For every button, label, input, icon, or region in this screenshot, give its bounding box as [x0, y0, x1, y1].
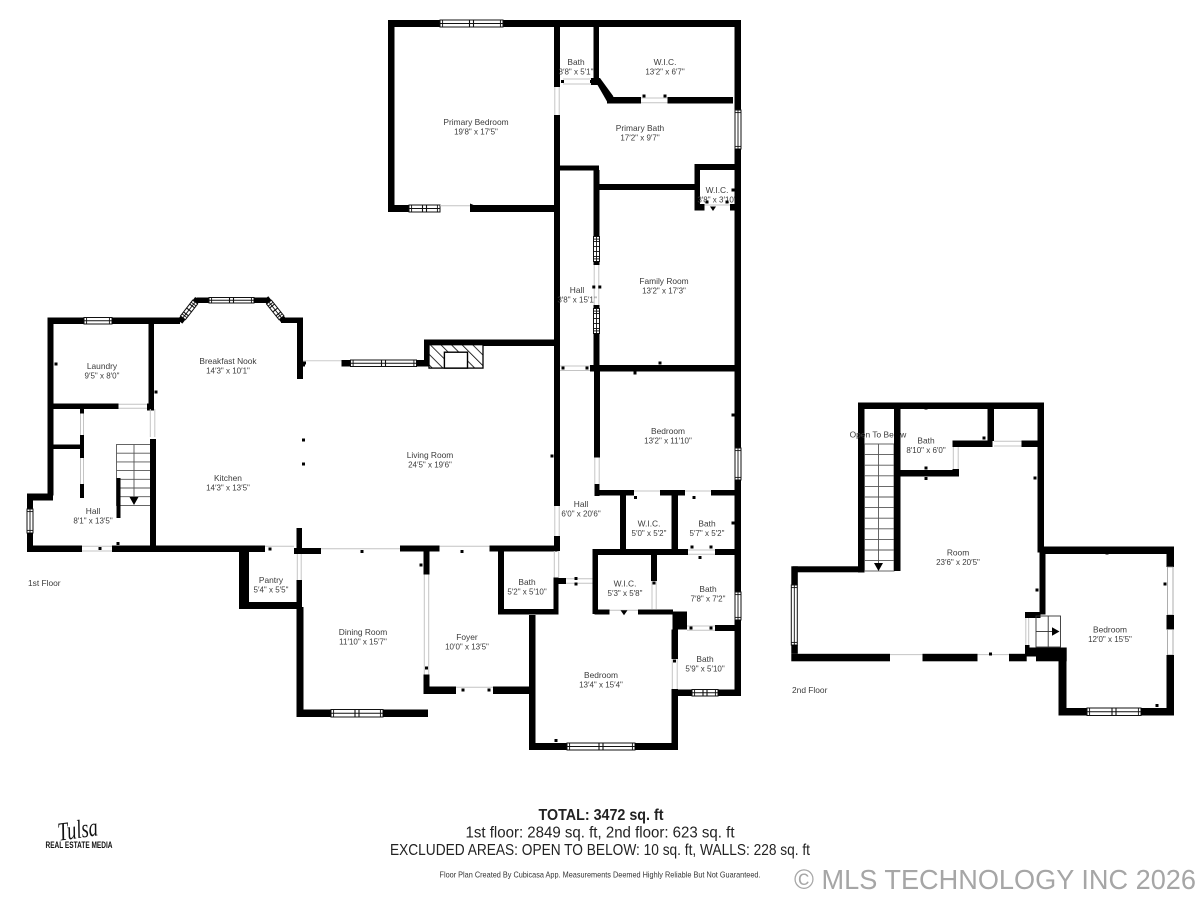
svg-text:5′0" x 5′2": 5′0" x 5′2" [632, 529, 667, 538]
svg-text:Bedroom: Bedroom [651, 426, 685, 436]
svg-text:Hall: Hall [570, 285, 585, 295]
svg-text:Dining Room: Dining Room [339, 627, 387, 637]
svg-text:Pantry: Pantry [259, 575, 284, 585]
svg-text:3′8" x 5′1": 3′8" x 5′1" [559, 68, 594, 77]
svg-text:REAL ESTATE MEDIA: REAL ESTATE MEDIA [46, 840, 113, 851]
svg-text:12′0" x 15′5": 12′0" x 15′5" [1088, 635, 1132, 644]
svg-text:11′10" x 15′7": 11′10" x 15′7" [339, 638, 387, 647]
svg-text:Hall: Hall [86, 506, 101, 516]
svg-text:13′4" x 15′4": 13′4" x 15′4" [579, 681, 623, 690]
svg-text:Bedroom: Bedroom [1093, 625, 1127, 635]
svg-text:Room: Room [947, 548, 969, 558]
svg-text:5′7" x 5′2": 5′7" x 5′2" [690, 529, 725, 538]
svg-text:13′2" x 6′7": 13′2" x 6′7" [645, 68, 685, 77]
svg-text:2nd Floor: 2nd Floor [792, 685, 828, 695]
svg-text:© MLS TECHNOLOGY INC 2026: © MLS TECHNOLOGY INC 2026 [794, 864, 1196, 895]
svg-text:W.I.C.: W.I.C. [706, 185, 729, 195]
svg-text:8′1" x 13′5": 8′1" x 13′5" [73, 517, 113, 526]
svg-text:19′8" x 17′5": 19′8" x 17′5" [454, 128, 498, 137]
svg-text:Breakfast Nook: Breakfast Nook [199, 356, 257, 366]
svg-text:Hall: Hall [574, 499, 589, 509]
svg-text:8′10" x 6′0": 8′10" x 6′0" [906, 446, 946, 455]
svg-text:Bath: Bath [696, 654, 714, 664]
svg-text:W.I.C.: W.I.C. [638, 519, 661, 529]
svg-text:5′9" x 5′10": 5′9" x 5′10" [685, 665, 725, 674]
svg-text:W.I.C.: W.I.C. [614, 579, 637, 589]
svg-text:Laundry: Laundry [87, 361, 118, 371]
svg-text:TOTAL: 3472 sq. ft: TOTAL: 3472 sq. ft [539, 807, 665, 824]
svg-text:Foyer: Foyer [456, 632, 478, 642]
svg-text:Bath: Bath [699, 584, 717, 594]
svg-text:10′0" x 13′5": 10′0" x 13′5" [445, 643, 489, 652]
svg-text:5′3" x 5′8": 5′3" x 5′8" [608, 589, 643, 598]
svg-text:Bath: Bath [518, 577, 536, 587]
svg-text:13′2" x 11′10": 13′2" x 11′10" [644, 437, 692, 446]
svg-text:W.I.C.: W.I.C. [654, 57, 677, 67]
svg-text:Bath: Bath [917, 436, 935, 446]
svg-text:Primary Bath: Primary Bath [616, 123, 665, 133]
svg-text:Bath: Bath [567, 57, 585, 67]
svg-text:6′0" x 20′6": 6′0" x 20′6" [561, 510, 601, 519]
svg-text:7′8" x 7′2": 7′8" x 7′2" [691, 595, 726, 604]
svg-text:17′2" x 9′7": 17′2" x 9′7" [620, 134, 660, 143]
svg-text:Floor Plan Created By Cubicasa: Floor Plan Created By Cubicasa App. Meas… [440, 870, 761, 880]
svg-text:14′3" x 10′1": 14′3" x 10′1" [206, 367, 250, 376]
svg-text:5′2" x 5′10": 5′2" x 5′10" [507, 588, 547, 597]
svg-text:9′5" x 8′0": 9′5" x 8′0" [85, 372, 120, 381]
svg-text:Bath: Bath [698, 519, 716, 529]
svg-text:24′5" x 19′6": 24′5" x 19′6" [408, 461, 452, 470]
svg-text:Living Room: Living Room [407, 450, 454, 460]
svg-text:EXCLUDED AREAS: OPEN TO BELOW:: EXCLUDED AREAS: OPEN TO BELOW: 10 sq. ft… [390, 842, 811, 859]
svg-text:3′8" x 15′1": 3′8" x 15′1" [557, 296, 597, 305]
svg-text:Kitchen: Kitchen [214, 473, 242, 483]
svg-text:14′3" x 13′5": 14′3" x 13′5" [206, 484, 250, 493]
svg-text:5′4" x 5′5": 5′4" x 5′5" [254, 586, 289, 595]
svg-text:3′8" x 3′10": 3′8" x 3′10" [697, 196, 737, 205]
svg-text:Bedroom: Bedroom [584, 670, 618, 680]
svg-text:Family Room: Family Room [639, 276, 688, 286]
svg-text:13′2" x 17′3": 13′2" x 17′3" [642, 287, 686, 296]
svg-text:1st floor: 2849 sq. ft, 2nd fl: 1st floor: 2849 sq. ft, 2nd floor: 623 s… [466, 825, 736, 842]
svg-text:Primary Bedroom: Primary Bedroom [443, 117, 508, 127]
svg-text:1st Floor: 1st Floor [28, 578, 61, 588]
svg-text:23′6" x 20′5": 23′6" x 20′5" [936, 558, 980, 567]
